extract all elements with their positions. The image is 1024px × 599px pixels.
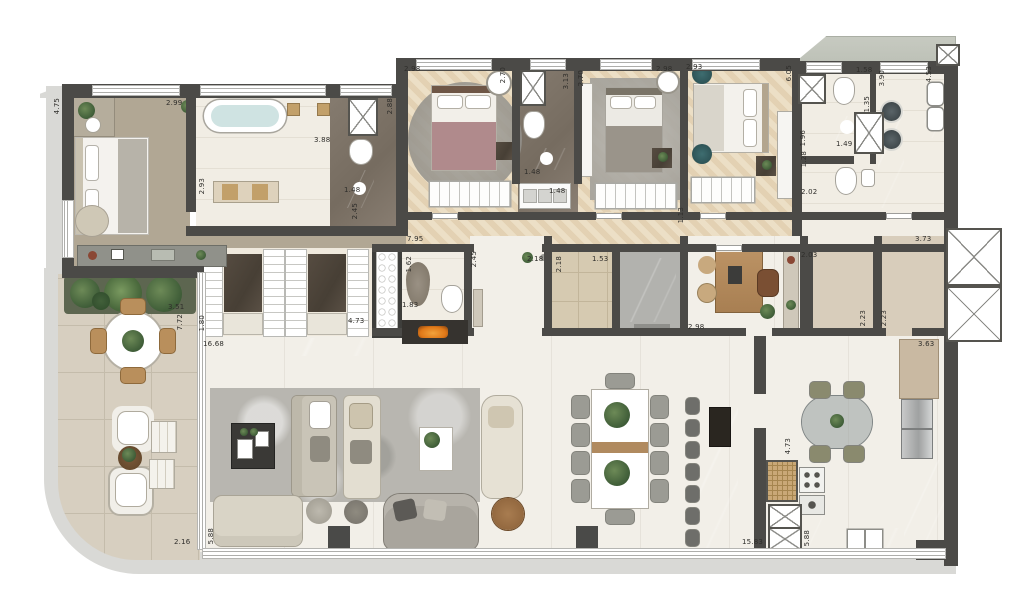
office-guest-chair [698,284,716,302]
bath-bench-cushion [252,184,268,200]
wall-master-bath-south [186,226,406,236]
closet-island [308,254,346,312]
wall-suite2-east [512,66,520,184]
wall-niche-east [874,236,882,336]
sofa-cushion [310,402,330,428]
wall-suite3-east [680,66,688,216]
wall-elevhall-east [612,244,620,334]
suite2-vanity-sink [540,152,553,165]
bath-a-sink [840,120,854,134]
tv-console-marble [240,338,404,356]
dining-chair [651,396,668,418]
bath-a-toilet [834,78,854,104]
door-leaf [887,214,911,218]
laundry-sink [928,108,943,130]
terrace-chair [91,329,106,353]
dining-chair [651,452,668,474]
window-top [600,59,652,70]
suite2-bed-headboard [432,86,496,93]
lounge-ottoman [152,422,176,452]
kitchen-sink-divider [864,530,866,548]
chaise-cushion [488,406,514,428]
window-top [880,62,928,73]
suite4-plant [762,160,772,170]
terrace-table-plant [122,330,144,352]
floor-elevator-hall [550,244,618,330]
suite2-pillow [438,96,462,108]
coffee-table-tray [256,432,268,446]
wine-rack [377,252,397,332]
office-plant [760,304,775,319]
dining-chair [572,424,589,446]
suite4-blanket [694,85,724,151]
floor-bath-b [796,164,870,234]
suite4-dresser [778,112,792,198]
window-top [692,59,760,70]
wall-bedrooms-south [406,212,946,220]
bar-stool [686,530,699,546]
door-leaf [433,214,457,218]
suite3-pillow [611,97,631,108]
wall-kitchen-west-lower [754,428,766,558]
kitchen-chair [810,382,830,398]
wall-master-south [62,266,204,278]
kitchen-chair [844,382,864,398]
sofa2-cushion [350,404,372,428]
drawer-front [554,190,566,202]
suite3-plant [658,152,668,162]
bath-a-shower [798,74,826,104]
bar-stool [686,398,699,414]
round-side-pouf [306,498,332,524]
closet-shelf-unit [286,250,306,336]
coffee-table-tray [238,440,252,458]
dining-chair [572,480,589,502]
lounge-ottoman [150,460,174,488]
round-side-pouf [344,500,368,524]
floor-storage-niche [806,244,880,336]
dining-chair [651,480,668,502]
closet-shelf-unit [348,250,368,336]
side-table-plant [424,432,440,448]
office-sideboard-plant [786,300,796,310]
office-sideboard-bowl [787,256,795,264]
drawer-front [539,190,551,202]
console-frame [112,250,123,259]
suite4-bed-headboard [762,84,768,152]
washer [882,102,901,121]
suite2-basin [488,72,510,94]
bar-stool [686,420,699,436]
foyer-north-opening [474,244,542,252]
wall-left-mid-divider [396,58,408,236]
laundry-sink [928,83,943,105]
office-guest-chair [698,256,716,274]
elevator-shaft [946,228,1002,286]
breakfast-table-plant [830,414,844,428]
suite2-side-table [496,142,512,160]
wall-elevator-east [680,236,688,336]
powder-toilet [442,286,462,312]
closet-drawers [308,314,346,334]
wall-bath-divider [796,156,854,164]
bathtub-water [211,105,279,127]
slab-edge-bottom [200,558,956,574]
suite3-stool [658,72,678,92]
shower-master-wc [348,98,378,136]
dining-plant [604,402,630,428]
dining-chair [606,374,634,388]
console-tray [152,250,174,260]
potted-plant [78,102,95,119]
bath-stool [318,104,329,115]
garden-bush [92,292,110,310]
sofa-cushion [310,436,330,462]
closet-shelf-unit [264,250,284,336]
bath-bench-cushion [222,184,238,200]
terrace-chair [121,368,145,383]
wall-master-bath-west [186,96,196,212]
suite3-wardrobe [596,184,676,208]
island-sink [710,408,730,446]
suite4-pillow [744,90,756,116]
bar-stool [686,442,699,458]
suite2-shower [520,70,546,106]
wall-kitchen-west-upper [754,336,766,394]
toilet-master-wc [350,140,372,164]
dining-chair [572,452,589,474]
stove [800,468,824,492]
sofa2-cushion [350,440,372,464]
counter-right [904,460,944,552]
refrigerator-split [902,428,932,430]
bath-b-sink [862,170,874,186]
kitchen-shaft [768,504,802,529]
kitchen-cabinet-top [900,340,938,398]
corridor-south-opening [886,328,912,336]
suite2-blanket [432,122,496,170]
master-bed-throw [118,139,147,233]
window-top [530,59,566,70]
bar-stool [686,486,699,502]
terrace-side-plant [122,448,136,462]
wall-foyer-east [544,236,552,336]
bath-shared-shower [854,112,884,154]
door-leaf [597,214,621,218]
window-top [200,85,326,96]
wall-corridor-south [372,244,948,252]
sofa-bottom [214,496,302,546]
lounge-chair-cushion [118,412,148,444]
suite4-pouf-teal [692,144,712,164]
closet-island [224,254,262,312]
window-top [340,85,392,96]
drawer-front [524,190,536,202]
window-top [416,59,492,70]
vanity-sink [353,182,366,195]
terrace-chair [160,329,175,353]
pantry-basket [768,462,796,500]
suite3-bed-headboard [606,88,662,95]
suite2-wardrobe [430,182,510,206]
wall-office-east [800,236,808,336]
lounge-chair-cushion [116,474,146,506]
terrace-glass-wall [197,272,206,550]
door-leaf [701,214,725,218]
window-top [92,85,180,96]
coffee-table-plant [250,428,258,436]
bath-b-toilet [836,168,856,194]
suite2-pillow [466,96,490,108]
garden-palm [146,276,182,312]
floor-pouf-dark [576,526,598,548]
dining-chair [606,510,634,524]
window-top [806,62,842,73]
foyer-bench [474,290,482,326]
oven [800,496,824,514]
table-lamp [86,118,100,132]
console-bowl [88,251,97,260]
door-leaf [717,246,741,250]
wall-suite3-west [574,66,582,184]
elevator-shaft [946,286,1002,342]
floor-plan-canvas: 4.752.993.882.931.482.452.882.982.703.13… [0,0,1024,599]
living-glass-wall [202,548,946,559]
coffee-table-plant [240,428,248,436]
dining-table-wood-band [592,442,648,453]
closet-drawers [224,314,262,334]
terrace-chair [121,299,145,314]
kitchen-chair [844,446,864,462]
bath-stool [288,104,299,115]
dining-plant [604,460,630,486]
suite4-pillow [744,120,756,146]
elevator-cab [628,258,676,322]
master-bed-pillow [86,146,98,180]
dryer [882,130,901,149]
fireplace-fire [418,326,448,338]
window-master-west [62,200,74,258]
suite4-wardrobe-bench [692,178,754,202]
office-monitor [728,266,742,284]
office-south-opening [746,328,772,336]
balcony-top-right [794,36,956,63]
dining-chair [651,424,668,446]
round-wood-table [492,498,524,530]
foyer-plant [522,252,533,263]
bar-stool [686,508,699,524]
master-pouf [76,206,108,236]
floor-pouf-dark [328,526,350,548]
console-plant [196,250,206,260]
suite3-pillow [635,97,655,108]
foyer-south-opening [474,328,542,336]
suite2-toilet [524,112,544,138]
sofa-curved-cushion [423,499,448,522]
office-chair [758,270,778,296]
bar-stool [686,464,699,480]
duct-shaft [936,44,960,66]
dining-chair [572,396,589,418]
